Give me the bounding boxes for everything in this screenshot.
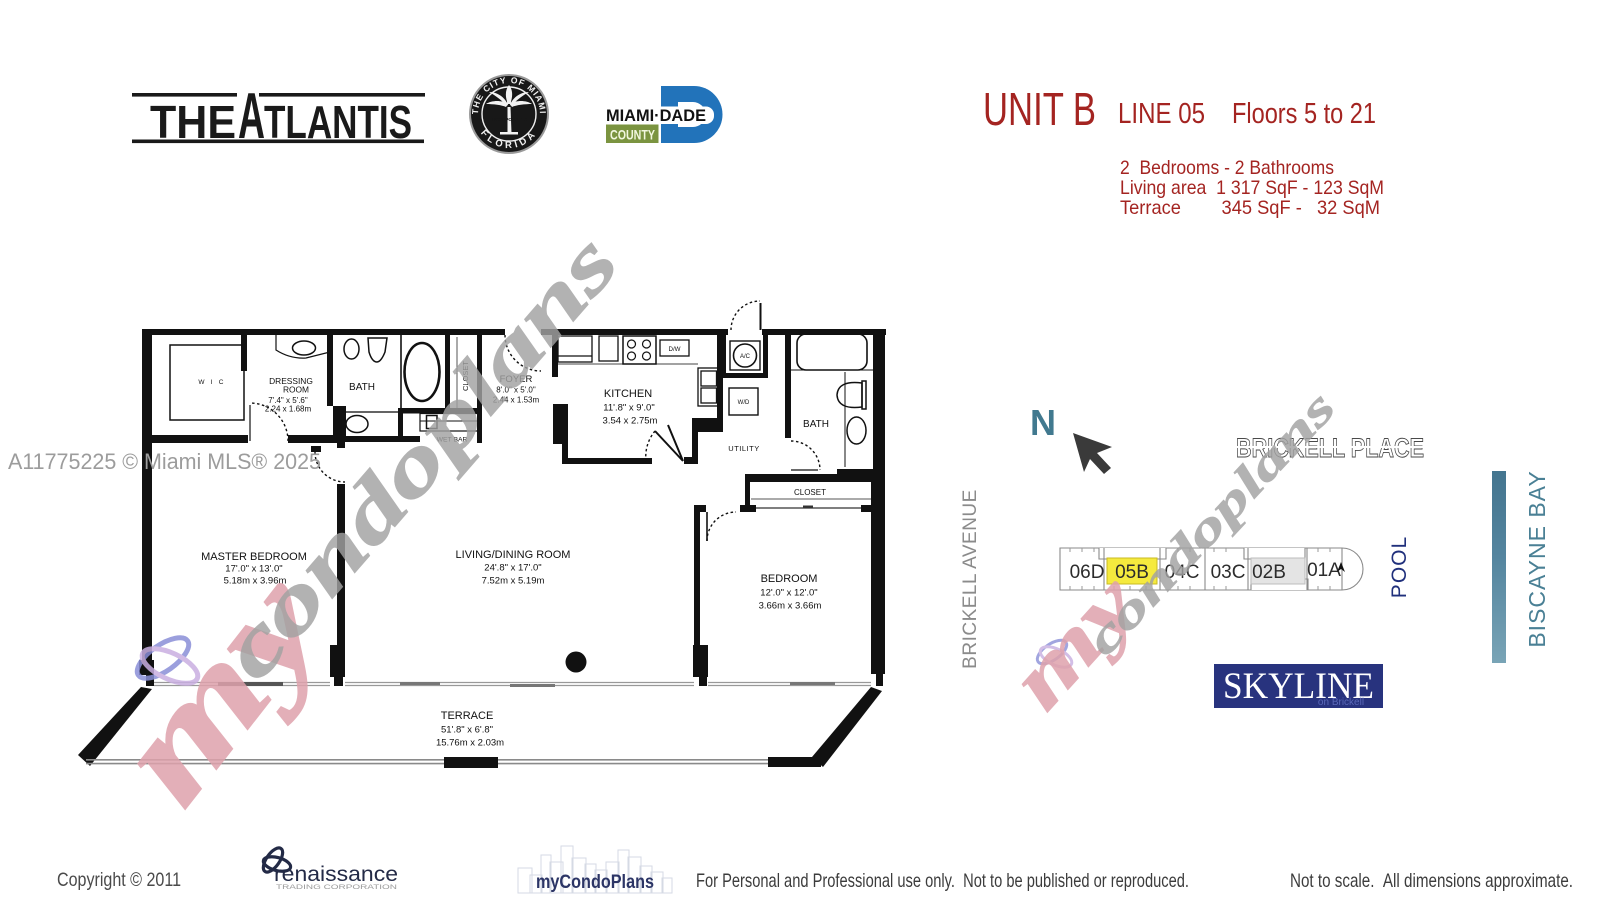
- svg-text:3.54 x 2.75m: 3.54 x 2.75m: [603, 416, 658, 427]
- svg-text:LINE 05: LINE 05: [1118, 98, 1205, 130]
- svg-text:For Personal and Professional: For Personal and Professional use only. …: [696, 870, 1189, 892]
- svg-text:COUNTY: COUNTY: [610, 128, 655, 143]
- svg-text:W/D: W/D: [738, 400, 750, 406]
- svg-text:01A: 01A: [1307, 560, 1341, 581]
- svg-text:15.76m x 2.03m: 15.76m x 2.03m: [436, 738, 504, 749]
- svg-text:on Brickell: on Brickell: [1318, 697, 1364, 708]
- svg-text:Living area 1 317 SqF - 123 S: Living area 1 317 SqF - 123 SqM: [1120, 177, 1384, 199]
- svg-text:TRADING CORPORATION: TRADING CORPORATION: [276, 884, 397, 891]
- svg-text:Floors 5 to 21: Floors 5 to 21: [1232, 98, 1376, 130]
- svg-text:TERRACE: TERRACE: [441, 710, 494, 722]
- svg-text:03C: 03C: [1211, 562, 1246, 583]
- svg-text:UTILITY: UTILITY: [728, 444, 759, 453]
- svg-text:7.52m x 5.19m: 7.52m x 5.19m: [482, 576, 545, 587]
- svg-text:LIVING/DINING ROOM: LIVING/DINING ROOM: [456, 549, 571, 561]
- svg-text:2 Bedrooms - 2 Bathrooms: 2 Bedrooms - 2 Bathrooms: [1120, 157, 1334, 179]
- svg-text:myCondoPlans: myCondoPlans: [536, 871, 654, 893]
- svg-text:3.66m x 3.66m: 3.66m x 3.66m: [759, 601, 822, 612]
- svg-text:D/W: D/W: [668, 346, 680, 353]
- svg-text:02B: 02B: [1252, 562, 1286, 583]
- svg-text:2.24 x 1.68m: 2.24 x 1.68m: [265, 405, 312, 414]
- svg-text:A11775225 © Miami MLS® 2025: A11775225 © Miami MLS® 2025: [8, 449, 321, 474]
- svg-text:THE: THE: [150, 96, 236, 148]
- svg-text:Copyright © 2011: Copyright © 2011: [57, 870, 181, 891]
- svg-text:Terrace 345 SqF - 32: Terrace 345 SqF - 32 SqM: [1120, 197, 1380, 219]
- svg-text:24'.8" x 17'.0": 24'.8" x 17'.0": [484, 563, 541, 574]
- svg-text:BRICKELL AVENUE: BRICKELL AVENUE: [960, 489, 981, 669]
- svg-text:renaissance: renaissance: [274, 862, 398, 886]
- svg-text:POOL: POOL: [1388, 536, 1411, 598]
- svg-text:BISCAYNE BAY: BISCAYNE BAY: [1524, 470, 1550, 647]
- svg-text:Not to scale. All dimensions: Not to scale. All dimensions approximate…: [1290, 870, 1573, 892]
- svg-text:A: A: [238, 79, 265, 152]
- svg-text:UNIT B: UNIT B: [983, 83, 1096, 135]
- svg-text:TLANTIS: TLANTIS: [264, 96, 412, 148]
- svg-text:ROOM: ROOM: [283, 385, 309, 395]
- svg-text:KITCHEN: KITCHEN: [604, 388, 652, 400]
- svg-text:51'.8" x 6'.8": 51'.8" x 6'.8": [441, 725, 493, 736]
- svg-text:11'.8" x 9'.0": 11'.8" x 9'.0": [603, 403, 654, 414]
- svg-text:A/C: A/C: [740, 354, 751, 360]
- svg-text:INCORPORATED: INCORPORATED: [491, 117, 529, 122]
- svg-text:MIAMI·DADE: MIAMI·DADE: [606, 106, 706, 125]
- svg-text:W I C: W I C: [198, 379, 225, 386]
- svg-text:BEDROOM: BEDROOM: [761, 573, 818, 585]
- svg-text:BATH: BATH: [803, 419, 829, 430]
- svg-text:12'.0" x 12'.0": 12'.0" x 12'.0": [760, 588, 817, 599]
- svg-text:CLOSET: CLOSET: [794, 488, 826, 497]
- svg-text:BATH: BATH: [349, 382, 375, 393]
- svg-text:N: N: [1030, 402, 1056, 443]
